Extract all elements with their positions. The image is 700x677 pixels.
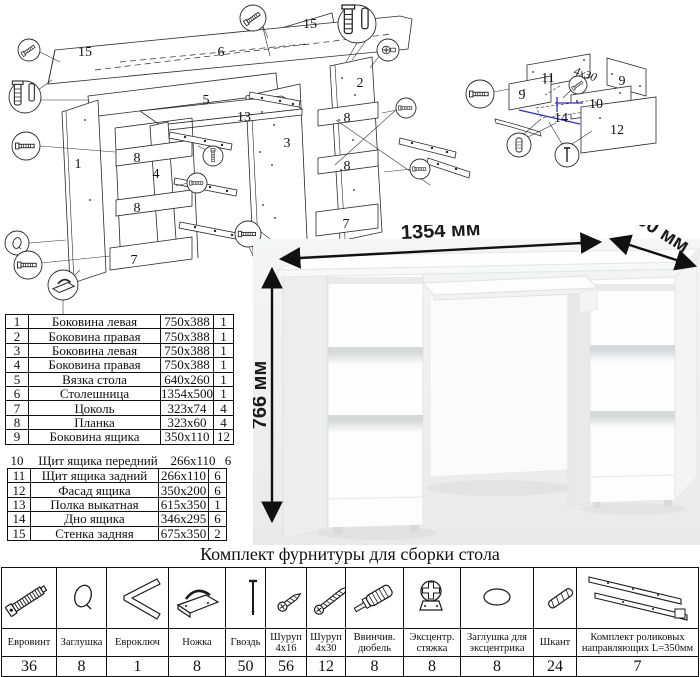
parts-row: 1Боковина левая750x3881 [6,315,234,329]
part-number-label: 8 [344,159,351,174]
parts-cell-name: Фасад ящика [31,483,159,497]
parts-cell-name: Дно ящика [31,512,159,526]
parts-row: 11Щит ящика задний266x1106 [8,469,227,483]
hardware-row: 36818505612888247 [2,657,699,677]
hardware-qty: 50 [226,657,266,677]
hardware-label: Эксцентр. стяжка [404,629,461,657]
hardware-kit-title: Комплект фурнитуры для сборки стола [0,543,700,565]
part-number-label: 9 [619,74,626,89]
hex-key-icon [107,568,169,629]
hardware-qty: 36 [2,657,57,677]
hardware-label: Шуруп 4x16 [266,629,307,657]
parts-cell-num: 3 [6,343,29,357]
callout-hardware-glyph [413,167,426,171]
parts-cell-num: 9 [6,430,29,444]
parts-cell-num: 15 [8,526,31,540]
parts-cell-qty: 6 [209,469,227,483]
callout-hardware-glyph [16,143,35,149]
parts-cell-num: 1 [6,315,29,329]
parts-cell-size: 350x110 [161,430,214,444]
parts-cell-name: Вязка стола [29,372,161,386]
callout-hardware-glyph [211,149,215,162]
parts-cell-size: 675x350 [159,526,209,540]
part-number-label: 11 [541,71,554,86]
parts-cell-size: 1354x500 [161,386,214,400]
part-number-label: 8 [134,151,141,166]
hardware-qty: 8 [404,657,461,677]
parts-cell-num: 14 [8,512,31,526]
cam-lock-icon [404,568,461,629]
parts-cell-num: 5 [6,372,29,386]
parts-cell-num: 13 [8,497,31,511]
part-number-label: 8 [134,201,141,216]
part-number-label: 14 [554,111,568,126]
parts-cell-name: Боковина левая [29,315,161,329]
parts-cell-num: 11 [8,469,31,483]
parts-row: 6Столешница1354x5001 [6,386,234,400]
hardware-qty: 8 [346,657,404,677]
parts-cell-size: 346x295 [159,512,209,526]
parts-cell-name: Щит ящика передний [29,453,167,468]
callout-hardware-glyph [190,181,203,185]
hardware-qty: 8 [57,657,107,677]
part-number-label: 6 [218,45,225,60]
parts-cell-num: 6 [6,386,29,400]
parts-cell-num: 7 [6,401,29,415]
callout-hardware-glyph [516,138,522,152]
parts-cell-qty: 1 [209,497,227,511]
assembly-instruction-sheet: 1561551321848738871199101412 4x30 [0,0,700,677]
parts-cell-name: Столешница [29,386,161,400]
hardware-label: Шуруп 4x30 [307,629,346,657]
parts-cell-num: 4 [6,358,29,372]
parts-cell-qty: 1 [214,372,234,386]
screw-long-icon [307,568,346,629]
parts-cell-size: 615x350 [159,497,209,511]
part-number-label: 12 [610,123,624,138]
parts-cell-size: 323x74 [161,401,214,415]
part-number-label: 5 [203,93,210,108]
parts-cell-qty: 1 [214,315,234,329]
parts-cell-size: 750x388 [161,358,214,372]
parts-cell-size: 350x200 [159,483,209,497]
hardware-label: Шкант [534,629,577,657]
parts-cell-qty: 1 [214,386,234,400]
parts-row: 4Боковина правая750x3881 [6,358,234,372]
hardware-label: Заглушка [57,629,107,657]
parts-cell-qty: 6 [209,483,227,497]
part-number-label: 3 [284,136,291,151]
part-number-label: 15 [78,45,92,60]
parts-cell-name: Боковина ящика [29,430,161,444]
parts-cell-size: 750x388 [161,343,214,357]
parts-row: 8Планка323x604 [6,415,234,429]
hardware-label: Ножка [169,629,226,657]
parts-cell-name: Стенка задняя [31,526,159,540]
parts-row: 2Боковина правая750x3881 [6,329,234,343]
euro-screw-icon [2,568,57,629]
part-number-label: 13 [237,110,251,125]
callout-hardware-glyph [18,262,37,268]
parts-cell-num: 12 [8,483,31,497]
parts-cell-name: Боковина правая [29,358,161,372]
parts-cell-name: Щит ящика задний [31,469,159,483]
hardware-label: Евроключ [107,629,169,657]
hardware-qty: 8 [169,657,226,677]
hardware-qty: 24 [534,657,577,677]
part-number-label: 8 [344,111,351,126]
parts-cell-qty: 1 [214,343,234,357]
part-number-label: 4 [153,167,160,182]
parts-row-borderless: 10Щит ящика передний266x1106 [5,453,237,468]
parts-cell-size: 750x388 [161,315,214,329]
parts-cell-qty: 4 [214,401,234,415]
hardware-qty: 7 [577,657,699,677]
parts-cell-num: 2 [6,329,29,343]
parts-row: 5Вязка стола640x2601 [6,372,234,386]
parts-cell-size: 750x388 [161,329,214,343]
parts-cell-size: 323x60 [161,415,214,429]
screw-small-icon [266,568,307,629]
part-number-label: 1 [75,157,82,172]
parts-row: 15Стенка задняя675x3502 [8,526,227,540]
parts-row: 14Дно ящика346x2956 [8,512,227,526]
callout-hardware-glyph [470,91,489,97]
parts-cell-name: Боковина левая [29,343,161,357]
parts-table-lower: 11Щит ящика задний266x110612Фасад ящика3… [7,468,227,541]
parts-row: 13Полка выкатная615x3501 [8,497,227,511]
hardware-row: ЕвровинтЗаглушкаЕвроключНожкаГвоздьШуруп… [2,629,699,657]
parts-table-upper: 1Боковина левая750x38812Боковина правая7… [5,314,234,445]
parts-cell-qty: 1 [214,358,234,372]
part-number-label: 2 [357,76,364,91]
hardware-label: Евровинт [2,629,57,657]
hardware-row [2,568,699,629]
parts-row: 12Фасад ящика350x2006 [8,483,227,497]
parts-cell-num: 10 [5,453,29,468]
wood-dowel-icon [534,568,577,629]
parts-cell-size: 640x260 [161,372,214,386]
parts-cell-name: Планка [29,415,161,429]
parts-row: 3Боковина левая750x3881 [6,343,234,357]
hardware-qty: 56 [266,657,307,677]
parts-cell-qty: 6 [219,453,237,468]
nail-icon [226,568,266,629]
height-dimension: 766 мм [253,361,271,430]
parts-cell-qty: 6 [209,512,227,526]
hardware-qty: 1 [107,657,169,677]
part-number-label: 10 [589,97,603,112]
parts-cell-qty: 12 [214,430,234,444]
hardware-label: Комплект роликовых направляющих L=350мм [577,629,699,657]
desk-render: 1354 мм 500 мм 766 мм [253,225,700,545]
parts-row: 9Боковина ящика350x11012 [6,430,234,444]
hardware-label: Заглушка для эксцентрика [461,629,534,657]
hardware-label: Ввинчив. дюбель [346,629,404,657]
parts-cell-name: Боковина правая [29,329,161,343]
parts-cell-name: Цоколь [29,401,161,415]
parts-row: 7Цоколь323x744 [6,401,234,415]
parts-cell-qty: 4 [214,415,234,429]
cam-cap-icon [461,568,534,629]
cap-icon [57,568,107,629]
parts-cell-size: 266x110 [159,469,209,483]
dowel-screw-icon [346,568,404,629]
foot-icon [169,568,226,629]
part-number-label: 15 [303,17,317,32]
hardware-label: Гвоздь [226,629,266,657]
parts-cell-qty: 2 [209,526,227,540]
drawer-slides-icon [577,568,699,629]
callout-hardware-glyph [399,106,412,110]
part-number-label: 7 [131,253,138,268]
part-number-label: 9 [519,88,526,103]
hardware-kit-table: ЕвровинтЗаглушкаЕвроключНожкаГвоздьШуруп… [1,567,699,677]
parts-cell-size: 266x110 [167,453,219,468]
hardware-qty: 12 [307,657,346,677]
parts-cell-name: Полка выкатная [31,497,159,511]
parts-cell-qty: 1 [214,329,234,343]
parts-cell-num: 8 [6,415,29,429]
hardware-qty: 8 [461,657,534,677]
